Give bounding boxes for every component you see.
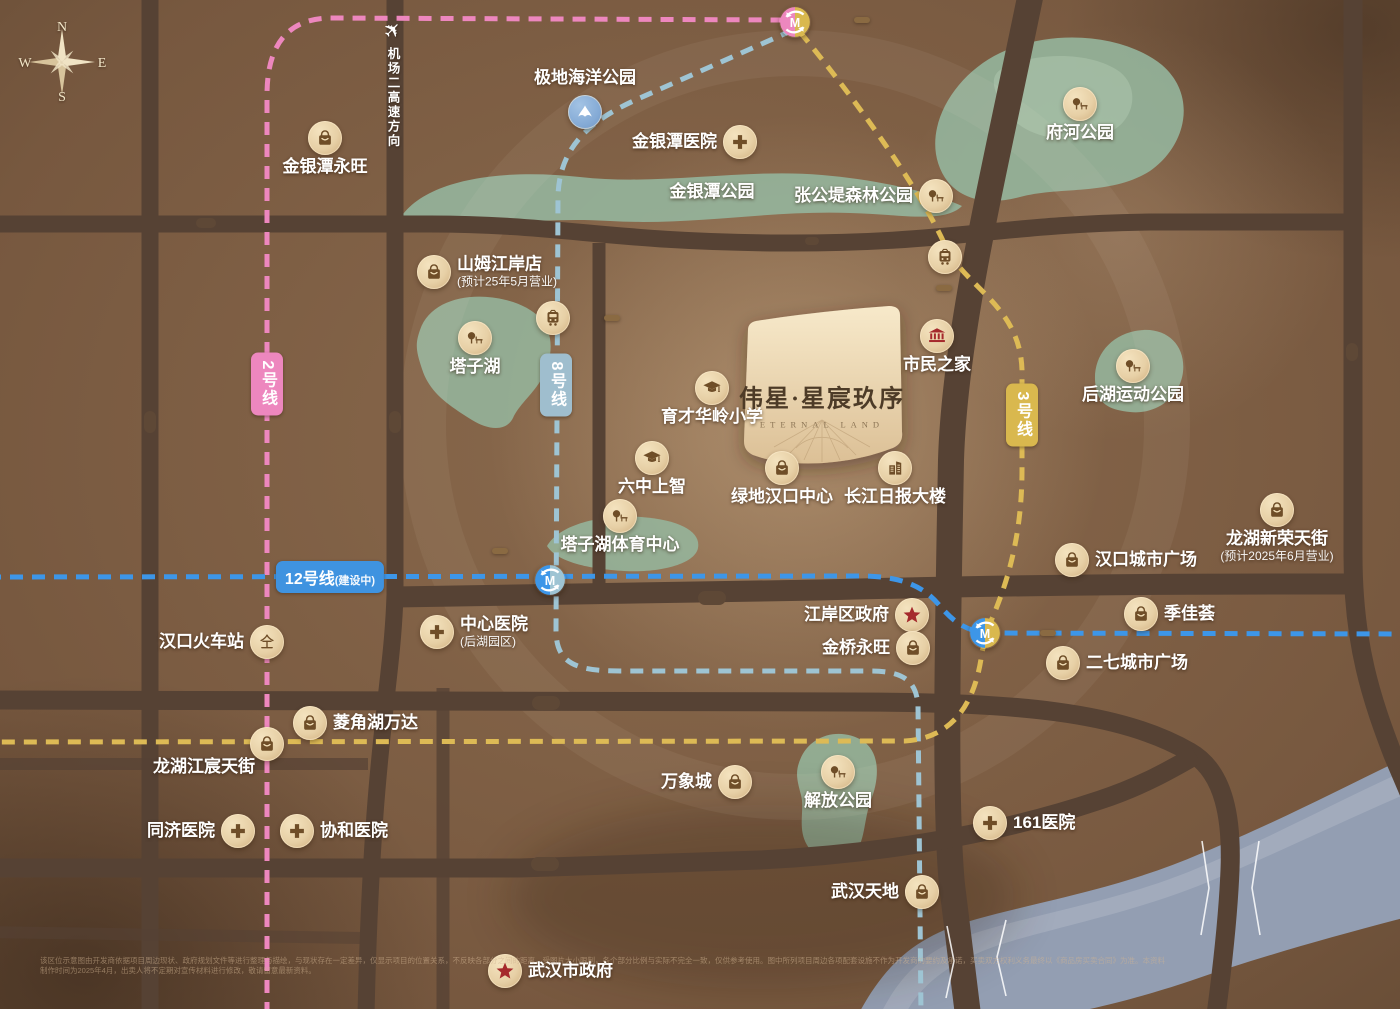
- airport-direction-label: 机场二高速方向: [384, 47, 403, 149]
- airport-direction: ✈ 机场二高速方向: [384, 18, 403, 149]
- compass-n: N: [57, 20, 67, 36]
- road-jiefang-north: [1353, 0, 1400, 802]
- road-houhu-avenue: [395, 584, 1350, 597]
- disclaimer-text: 该区位示意图由开发商依据项目周边现状、政府规划文件等进行整理与描绘，与现状存在一…: [40, 956, 1165, 975]
- map-base-svg: M M M: [0, 0, 1400, 1009]
- roads-layer: [0, 0, 1400, 1009]
- location-map: M M M: [0, 0, 1400, 1009]
- project-card: [744, 306, 902, 463]
- road-sanhuan-zhaorui: [0, 222, 1362, 243]
- compass: N E S W: [22, 16, 140, 134]
- road-xianggang: [366, 0, 395, 1009]
- compass-e: E: [98, 56, 107, 72]
- road-grid-h2: [0, 932, 360, 938]
- compass-s: S: [58, 90, 66, 106]
- compass-w: W: [18, 56, 31, 72]
